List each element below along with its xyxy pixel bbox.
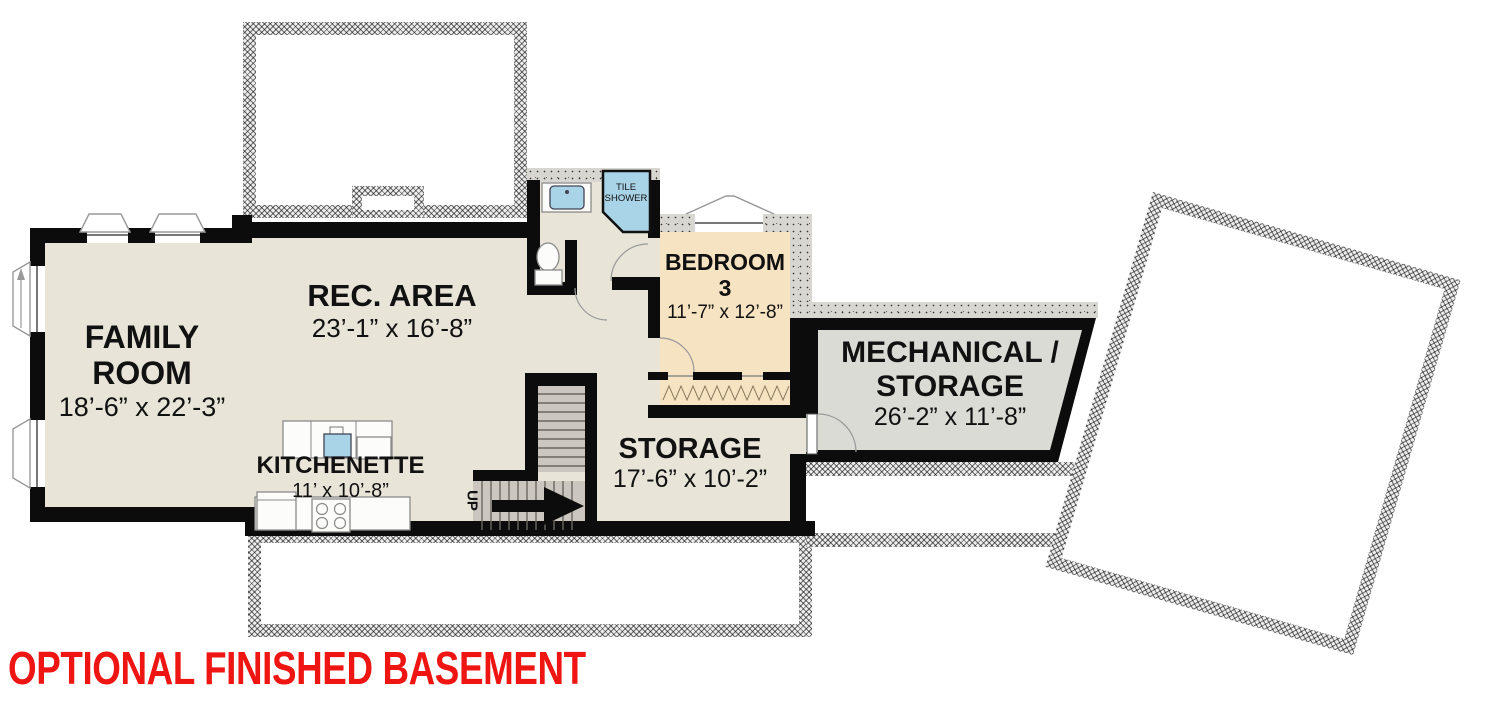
rec-area-name: REC. AREA [292, 279, 492, 314]
window-well-bedroom [686, 196, 774, 214]
stair-treads-upper [538, 394, 585, 466]
rec-area-label: REC. AREA 23’-1” x 16’-8” [292, 279, 492, 344]
bedroom-3-label: BEDROOM 3 11’-7” x 12’-8” [652, 250, 798, 323]
bedroom-3-dims: 11’-7” x 12’-8” [652, 302, 798, 324]
mechanical-name-line1: MECHANICAL / [818, 336, 1082, 370]
bath-faucet-icon [565, 190, 569, 194]
stairs-up-label: UP [464, 481, 481, 521]
hall-door-arc [575, 288, 607, 320]
kitchenette-name: KITCHENETTE [243, 453, 438, 480]
closet-hangers-icon [663, 386, 789, 400]
plan-title: OPTIONAL FINISHED BASEMENT [8, 641, 586, 695]
window-well-top2 [150, 214, 205, 232]
bedroom-3-name-line2: 3 [652, 276, 798, 302]
mechanical-storage-label: MECHANICAL / STORAGE 26’-2” x 11’-8” [818, 336, 1082, 432]
bath-door-arc [611, 244, 648, 281]
family-room-name-line1: FAMILY [33, 320, 251, 356]
family-room-label: FAMILY ROOM 18’-6” x 22’-3” [33, 320, 251, 423]
bath-sink-icon [550, 186, 584, 209]
bedroom-3-name-line1: BEDROOM [652, 250, 798, 276]
window-well-top1 [80, 214, 130, 232]
tile-shower-label-line1: TILE [602, 182, 650, 193]
mechanical-dims: 26’-2” x 11’-8” [818, 403, 1082, 432]
storage-label: STORAGE 17’-6” x 10’-2” [590, 433, 790, 494]
rec-area-dims: 23’-1” x 16’-8” [292, 314, 492, 344]
family-room-dims: 18’-6” x 22’-3” [33, 392, 251, 423]
family-room-name-line2: ROOM [33, 356, 251, 392]
bedroom-door-arc [660, 338, 694, 372]
mechanical-door-leaf [807, 414, 817, 454]
storage-dims: 17’-6” x 10’-2” [590, 465, 790, 494]
floor-plan: FAMILY ROOM 18’-6” x 22’-3” REC. AREA 23… [0, 0, 1500, 704]
storage-name: STORAGE [590, 433, 790, 465]
stairs-up-arrow-icon [492, 487, 584, 525]
tile-shower-label-line2: SHOWER [602, 193, 650, 204]
window-well-left2 [13, 419, 30, 488]
toilet-bowl-icon [537, 243, 559, 271]
kitchenette-dims: 11’ x 10’-8” [243, 480, 438, 503]
toilet-tank-icon [535, 270, 562, 285]
kitchenette-label: KITCHENETTE 11’ x 10’-8” [243, 453, 438, 503]
tile-shower-label: TILE SHOWER [602, 182, 650, 205]
kitchen-faucet-icon [330, 427, 343, 434]
mechanical-name-line2: STORAGE [818, 370, 1082, 404]
